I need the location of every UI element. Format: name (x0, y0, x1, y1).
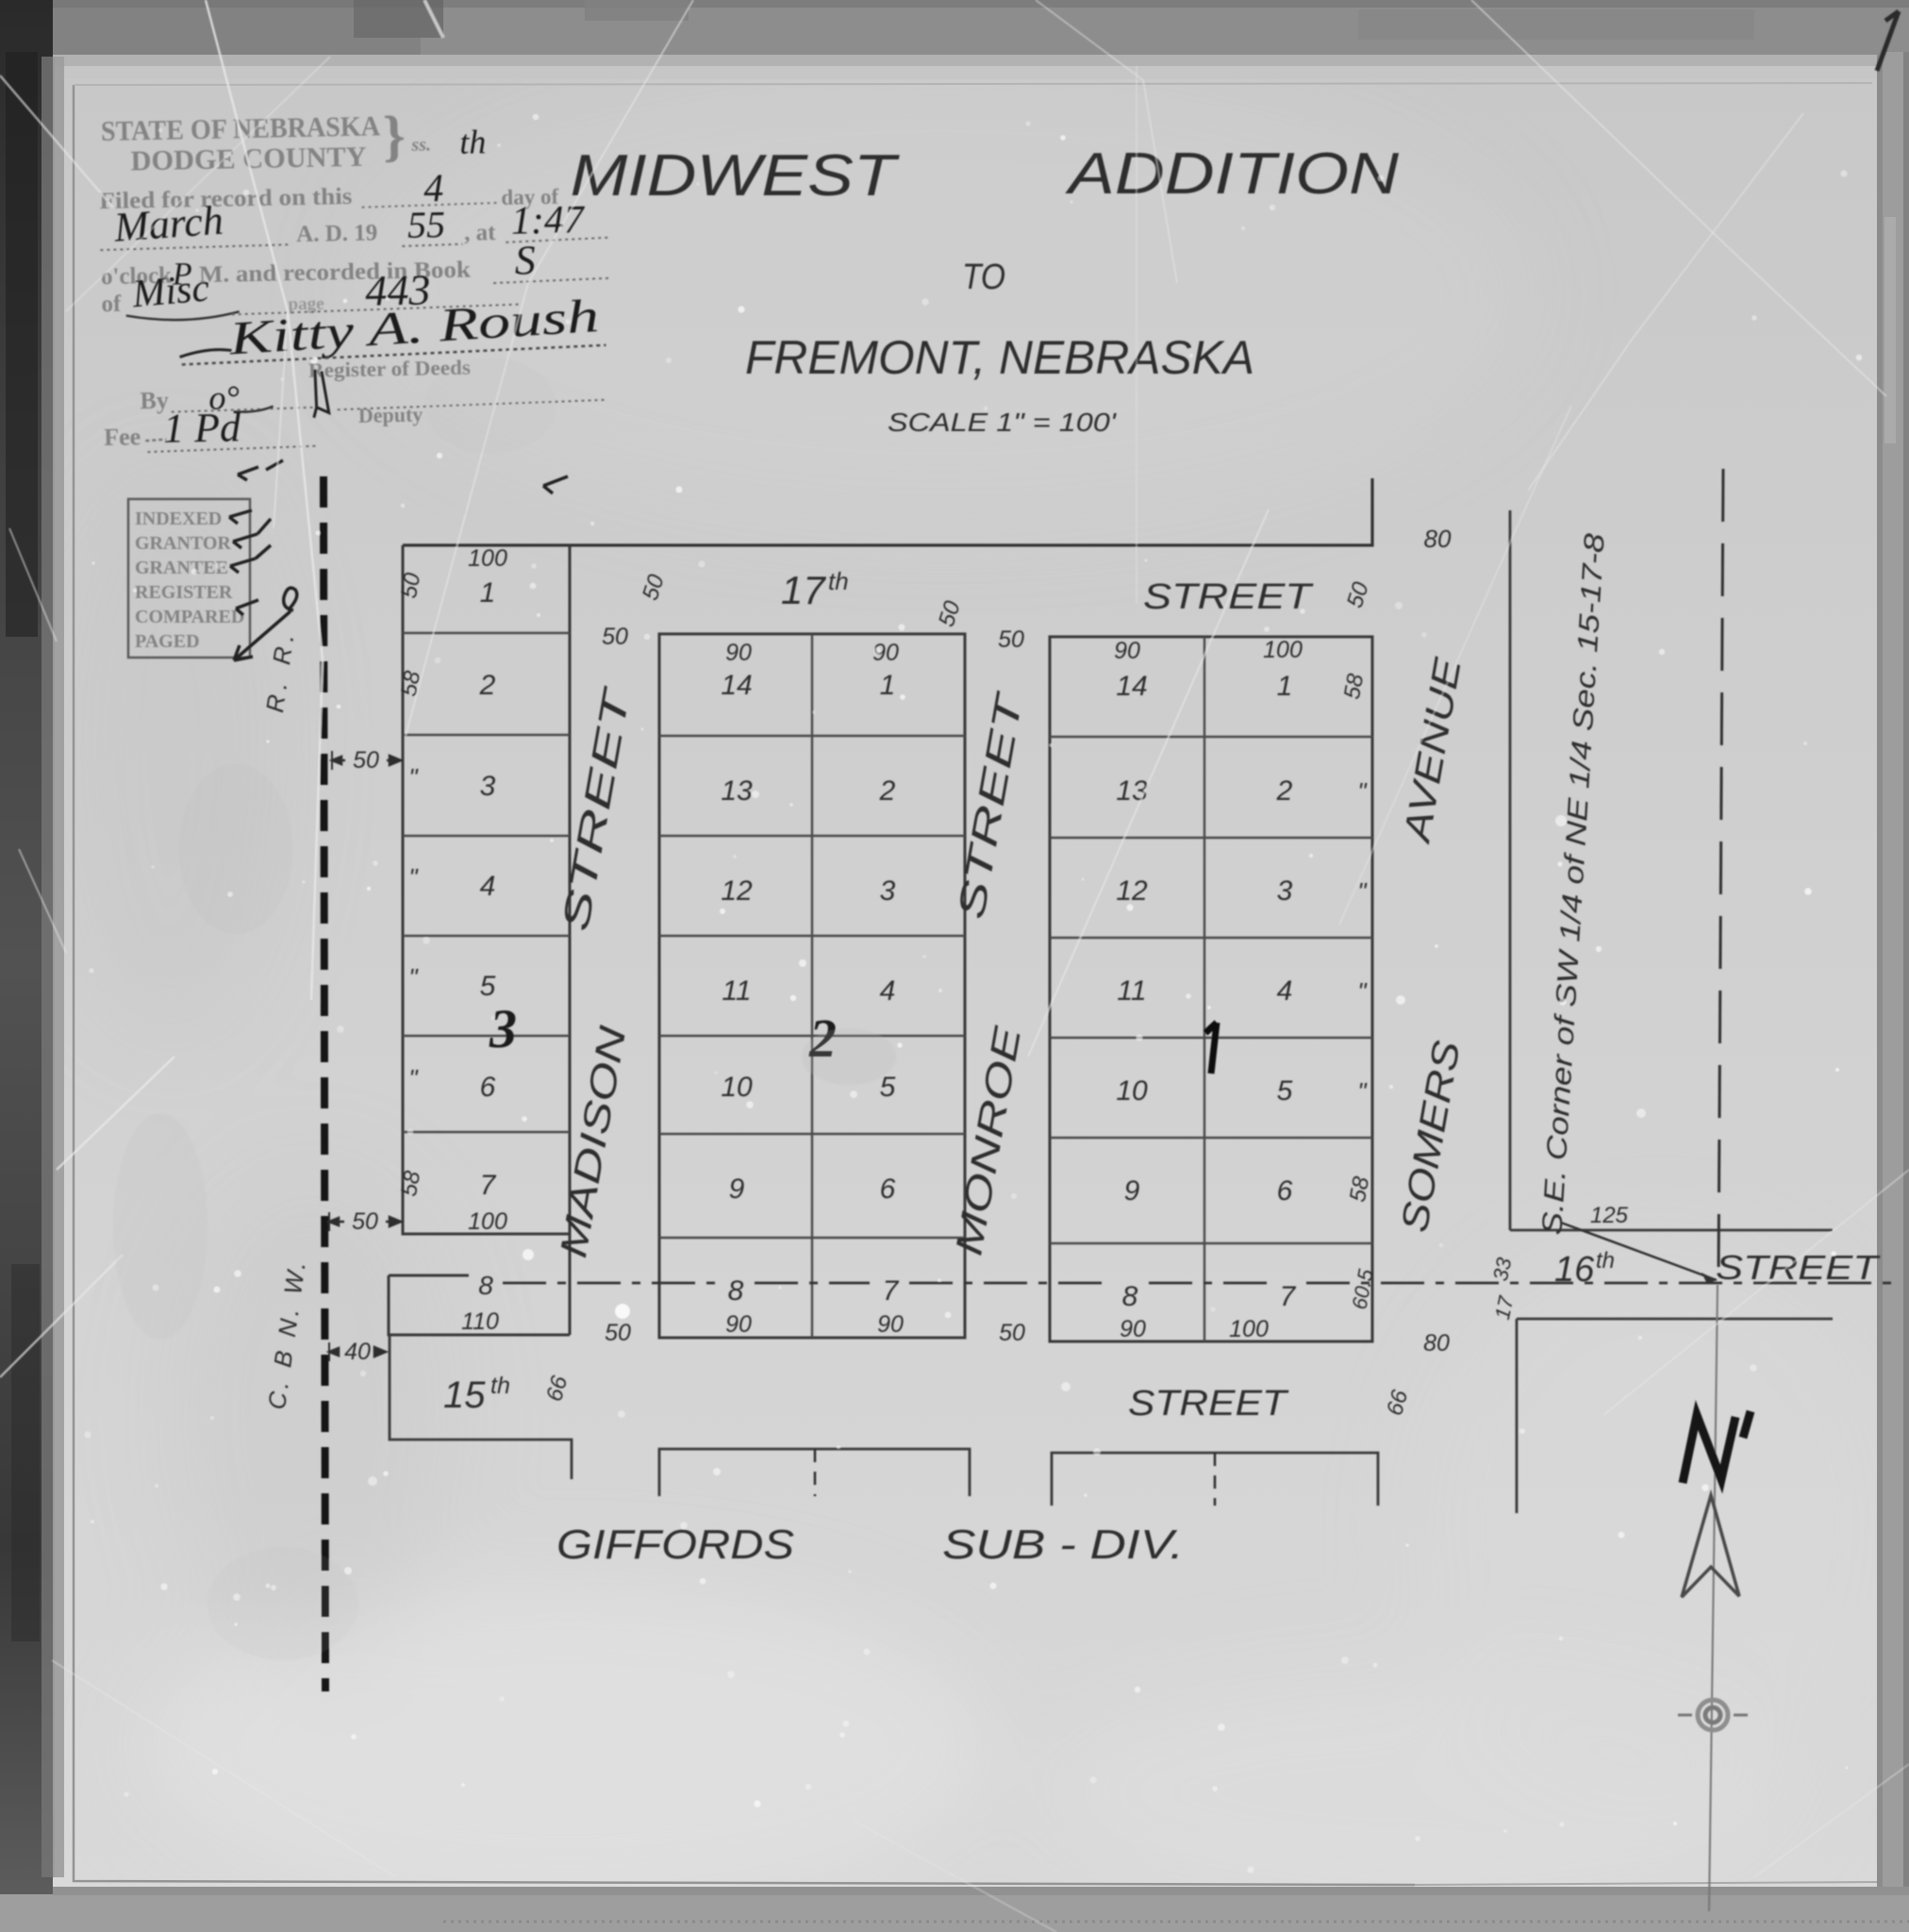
svg-text:1: 1 (880, 670, 896, 701)
svg-text:1: 1 (480, 577, 496, 608)
svg-text:GRANTEE: GRANTEE (135, 558, 228, 578)
svg-text:58: 58 (396, 1169, 425, 1199)
svg-text:of: of (101, 291, 122, 317)
svg-text:90: 90 (1114, 638, 1140, 664)
svg-text:90: 90 (725, 640, 752, 666)
svg-text:Fee: Fee (104, 423, 141, 451)
svg-text:12: 12 (1116, 875, 1148, 907)
svg-text:50: 50 (352, 1208, 378, 1235)
svg-text:13: 13 (721, 775, 753, 807)
svg-text:Deputy: Deputy (358, 403, 423, 427)
svg-text:8: 8 (728, 1275, 744, 1307)
svg-text:14: 14 (721, 670, 752, 701)
svg-text:A. D. 19: A. D. 19 (296, 220, 378, 247)
svg-text:th: th (828, 567, 849, 595)
svg-text:50: 50 (602, 624, 628, 650)
svg-text:STREET: STREET (1143, 577, 1314, 617)
svg-text:12: 12 (721, 875, 753, 907)
svg-text:5: 5 (1277, 1075, 1293, 1107)
svg-text:58: 58 (1339, 672, 1369, 702)
svg-text:th: th (490, 1373, 510, 1399)
svg-text:100: 100 (468, 545, 507, 572)
svg-text:9: 9 (1124, 1175, 1140, 1207)
svg-text:DODGE COUNTY: DODGE COUNTY (130, 142, 367, 177)
svg-text:4: 4 (480, 871, 496, 902)
svg-text:TO: TO (962, 258, 1005, 297)
svg-text:17: 17 (781, 568, 826, 612)
svg-text:GRANTOR: GRANTOR (135, 533, 231, 554)
svg-text:March: March (111, 197, 224, 251)
svg-text:11: 11 (722, 975, 751, 1007)
svg-text:2: 2 (879, 775, 896, 807)
svg-text:3: 3 (1277, 875, 1293, 907)
svg-text:4: 4 (880, 975, 896, 1007)
svg-text:SUB - DIV.: SUB - DIV. (942, 1522, 1184, 1568)
svg-text:6: 6 (480, 1072, 496, 1103)
svg-text:STREET: STREET (1128, 1384, 1289, 1424)
svg-text:125: 125 (1590, 1203, 1629, 1228)
svg-text:SCALE 1" = 100': SCALE 1" = 100' (888, 408, 1118, 437)
svg-text:10: 10 (721, 1072, 753, 1103)
svg-text:90: 90 (1120, 1316, 1146, 1342)
svg-text:}: } (383, 105, 407, 167)
svg-text:Misc: Misc (129, 266, 211, 316)
svg-text:100: 100 (1229, 1316, 1269, 1342)
svg-text:4: 4 (1277, 975, 1293, 1007)
svg-text:58: 58 (396, 669, 425, 699)
svg-text:11: 11 (1117, 975, 1146, 1007)
svg-text:13: 13 (1116, 775, 1148, 807)
svg-text:REGISTER: REGISTER (135, 582, 233, 603)
svg-text:58: 58 (1345, 1174, 1374, 1205)
svg-text:50: 50 (396, 571, 425, 601)
svg-text:14: 14 (1116, 671, 1147, 702)
svg-text:6: 6 (1277, 1175, 1293, 1207)
svg-text:MIDWEST: MIDWEST (571, 143, 901, 208)
svg-text:16: 16 (1554, 1250, 1595, 1290)
svg-text:50: 50 (998, 626, 1024, 653)
svg-text:110: 110 (461, 1308, 499, 1335)
svg-text:STREET: STREET (1716, 1248, 1882, 1287)
svg-text:FREMONT, NEBRASKA: FREMONT, NEBRASKA (745, 331, 1254, 384)
svg-text:40: 40 (344, 1339, 371, 1365)
svg-text:1 Pd: 1 Pd (163, 404, 242, 452)
svg-text:80: 80 (1424, 525, 1452, 553)
svg-text:9: 9 (729, 1174, 745, 1205)
svg-text:GIFFORDS: GIFFORDS (556, 1522, 794, 1568)
svg-text:15: 15 (443, 1374, 486, 1416)
svg-text:90: 90 (725, 1311, 752, 1338)
svg-text:, at: , at (464, 220, 497, 246)
svg-text:1: 1 (1277, 671, 1293, 702)
svg-text:55: 55 (407, 203, 446, 246)
svg-text:ADDITION: ADDITION (1064, 142, 1399, 207)
svg-text:2: 2 (1276, 775, 1293, 807)
svg-text:COMPARED: COMPARED (135, 607, 244, 627)
svg-text:90: 90 (877, 1311, 904, 1338)
svg-text:10: 10 (1116, 1075, 1148, 1107)
svg-text:7: 7 (883, 1275, 900, 1307)
svg-text:6: 6 (880, 1174, 896, 1205)
svg-text:8: 8 (478, 1271, 493, 1300)
svg-text:th: th (459, 123, 487, 161)
svg-text:80: 80 (1423, 1330, 1450, 1357)
svg-text:3: 3 (880, 875, 896, 907)
svg-text:INDEXED: INDEXED (135, 508, 222, 529)
svg-text:50: 50 (605, 1320, 631, 1346)
svg-text:100: 100 (1263, 637, 1303, 663)
svg-text:3: 3 (480, 771, 496, 802)
svg-text:50: 50 (353, 747, 379, 774)
svg-text:7: 7 (1280, 1281, 1297, 1312)
svg-text:PAGED: PAGED (135, 631, 200, 652)
svg-text:7: 7 (480, 1170, 497, 1201)
svg-text:3: 3 (489, 998, 517, 1059)
svg-text:8: 8 (1122, 1281, 1138, 1312)
svg-text:50: 50 (999, 1320, 1025, 1346)
svg-text:th: th (1596, 1248, 1615, 1274)
svg-text:ss.: ss. (410, 134, 431, 155)
svg-text:2: 2 (479, 670, 496, 701)
svg-text:100: 100 (468, 1208, 507, 1235)
